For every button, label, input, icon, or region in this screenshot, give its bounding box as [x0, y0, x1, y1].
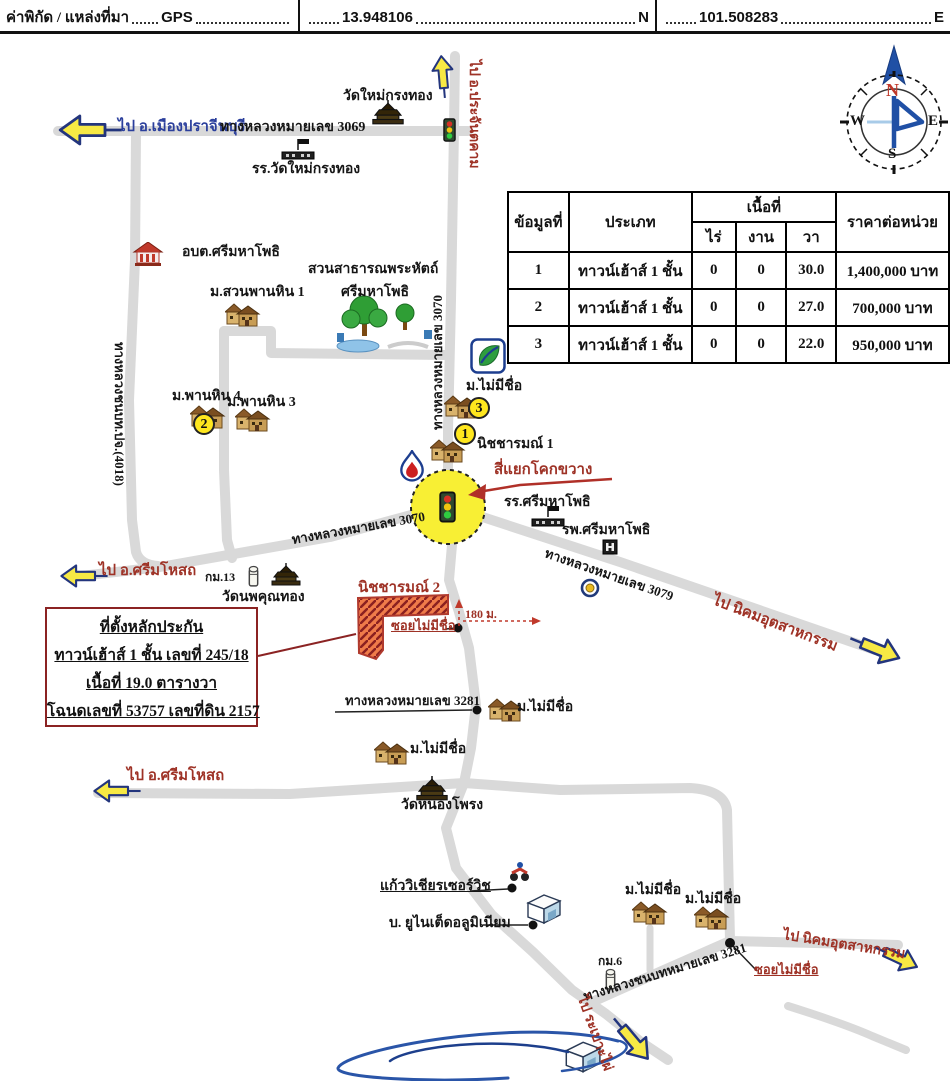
label-road-3069: ทางหลวงหมายเลข 3069: [220, 120, 365, 136]
collateral-info-box: ที่ตั้งหลักประกัน ทาวน์เฮ้าส์ 1 ชั้น เลข…: [45, 607, 258, 727]
label-rural-road-4018: ทางหลวงชนบท.ปจ.(4018): [111, 342, 126, 486]
latitude-cell: 13.948106 N: [300, 0, 657, 31]
warehouse-icon: [528, 895, 560, 923]
label-hospital-srimahaphot: รพ.ศรีมหาโพธิ: [562, 523, 650, 539]
label-road-3281: ทางหลวงหมายเลข 3281: [345, 694, 480, 709]
table-row: 2 ทาวน์เฮ้าส์ 1 ชั้น 0 0 27.0 700,000 บา…: [508, 289, 949, 326]
col-ngan: งาน: [736, 222, 787, 252]
cell-type: ทาวน์เฮ้าส์ 1 ชั้น: [569, 326, 692, 363]
traffic-light-icon: [440, 492, 455, 521]
label-m-no-name-ptt: ม.ไม่มีชื่อ: [466, 379, 522, 395]
subject-badge-3: 3: [468, 397, 490, 419]
village-icon: [374, 742, 408, 764]
cell-type: ทาวน์เฮ้าส์ 1 ชั้น: [569, 252, 692, 289]
label-to-srimahosot-1: ไป อ.ศรีมโหสถ: [99, 563, 196, 580]
village-icon: [694, 907, 728, 929]
coordinate-source: GPS: [161, 9, 193, 26]
cell-rai: 0: [692, 252, 736, 289]
cell-rai: 0: [692, 289, 736, 326]
info-line4: โฉนดเลขที่ 53757 เลขที่ดิน 2157: [47, 698, 256, 726]
col-wa: วา: [786, 222, 835, 252]
cell-no: 3: [508, 326, 569, 363]
ptt-station-icon: [472, 340, 505, 373]
col-type: ประเภท: [569, 192, 692, 252]
ptt-flame-icon: [401, 451, 422, 480]
label-kok-khwang-intersection: สี่แยกโคกขวาง: [494, 462, 592, 479]
latitude-suffix: N: [638, 9, 649, 26]
label-park-line2: ศรีมหาโพธิ: [341, 285, 409, 301]
longitude-suffix: E: [934, 9, 944, 26]
arrow-left-prachinburi-icon: [60, 116, 122, 144]
compass-north-arrow-icon: [883, 46, 905, 84]
label-wat-nopphakhun-thong: วัดนพคุณทอง: [222, 590, 305, 606]
info-title: ที่ตั้งหลักประกัน: [47, 614, 256, 642]
label-m-no-name-b2: ม.ไม่มีชื่อ: [685, 892, 741, 908]
info-line3: เนื้อที่ 19.0 ตารางวา: [47, 670, 256, 698]
dot-leader: [309, 21, 339, 24]
label-obt-srimahaphot: อบต.ศรีมหาโพธิ: [182, 245, 280, 261]
cell-price: 1,400,000 บาท: [836, 252, 949, 289]
label-km-6: กม.6: [598, 955, 622, 969]
cell-rai: 0: [692, 326, 736, 363]
label-nitcharom-1: นิชชารมณ์ 1: [477, 437, 554, 453]
coordinate-header: ค่าพิกัด / แหล่งที่มา GPS 13.948106 N 10…: [0, 0, 950, 34]
table-row: 3 ทาวน์เฮ้าส์ 1 ชั้น 0 0 22.0 950,000 บา…: [508, 326, 949, 363]
label-m-no-name-b1: ม.ไม่มีชื่อ: [625, 883, 681, 899]
dot-leader: [666, 21, 696, 24]
cell-ngan: 0: [736, 252, 787, 289]
label-school-srimahaphot: รร.ศรีมหาโพธิ: [504, 495, 591, 511]
compass-e-label: E: [928, 113, 938, 130]
village-icon: [632, 902, 666, 924]
label-road-3070-vertical: ทางหลวงหมายเลข 3070: [431, 295, 446, 430]
road-bottom-right: [788, 1006, 906, 1050]
label-school-wat-mai: รร.วัดใหม่กรงทอง: [252, 162, 360, 178]
cell-ngan: 0: [736, 326, 787, 363]
cell-wa: 22.0: [786, 326, 835, 363]
dot-leader: [196, 21, 289, 24]
cell-no: 1: [508, 252, 569, 289]
road-rural-4018: [129, 131, 158, 566]
road-internal-vertical: [224, 331, 232, 558]
col-no: ข้อมูลที่: [508, 192, 569, 252]
subject-badge-1: 1: [454, 423, 476, 445]
cell-wa: 27.0: [786, 289, 835, 326]
longitude-value: 101.508283: [699, 9, 778, 26]
label-united-aluminium: บ. ยูไนเต็ดอลูมิเนียม: [389, 916, 511, 932]
valuation-table: ข้อมูลที่ ประเภท เนื้อที่ ราคาต่อหน่วย ไ…: [507, 191, 950, 364]
label-wat-mai-krongthong: วัดใหม่กรงทอง: [343, 89, 433, 105]
school-icon: [282, 139, 314, 159]
label-km-13: กม.13: [205, 571, 235, 585]
label-wat-nong-phrong: วัดหนองโพรง: [401, 798, 483, 814]
station-badge-icon: [582, 580, 598, 596]
table-header-row: ข้อมูลที่ ประเภท เนื้อที่ ราคาต่อหน่วย: [508, 192, 949, 222]
compass-w-label: W: [850, 113, 865, 130]
temple-icon: [272, 563, 300, 585]
label-to-srimahosot-2: ไป อ.ศรีมโหสถ: [127, 768, 224, 785]
col-rai: ไร่: [692, 222, 736, 252]
label-m-suan-phan-hin-1: ม.สวนพานหิน 1: [210, 285, 305, 301]
km-post-icon: [249, 566, 257, 585]
label-distance-180m: 180 ม.: [465, 608, 497, 622]
label-m-no-name-mid: ม.ไม่มีชื่อ: [410, 742, 466, 758]
cell-ngan: 0: [736, 289, 787, 326]
label-to-prachantakham: ไป อ.ประจันตคาม: [465, 60, 481, 169]
label-kaew-wichian-service: แก้ววิเชียรเซอร์วิช: [380, 879, 491, 895]
label-park-line1: สวนสาธารณพระหัตถ์: [308, 262, 438, 278]
traffic-light-icon: [444, 119, 455, 141]
dot-leader: [132, 21, 158, 24]
label-nitcharom-2: นิชชารมณ์ 2: [358, 580, 440, 597]
village-icon: [235, 409, 269, 431]
cell-type: ทาวน์เฮ้าส์ 1 ชั้น: [569, 289, 692, 326]
compass-rose: N W E S: [838, 44, 950, 176]
cell-price: 950,000 บาท: [836, 326, 949, 363]
label-m-phan-hin-3: ม.พานหิน 3: [227, 395, 296, 411]
cell-no: 2: [508, 289, 569, 326]
longitude-cell: 101.508283 E: [657, 0, 950, 31]
dot-leader: [781, 21, 931, 24]
village-icon: [225, 304, 259, 326]
scanned-map-page: { "header": { "label": "ค่าพิกัด / แหล่ง…: [0, 0, 950, 1081]
coordinate-label-cell: ค่าพิกัด / แหล่งที่มา GPS: [0, 0, 300, 31]
label-m-no-name-3281: ม.ไม่มีชื่อ: [517, 700, 573, 716]
label-soi-no-name-2: ซอยไม่มีชื่อ: [754, 963, 819, 978]
hospital-icon: [603, 540, 617, 554]
motorcycle-icon: [510, 862, 529, 881]
table-row: 1 ทาวน์เฮ้าส์ 1 ชั้น 0 0 30.0 1,400,000 …: [508, 252, 949, 289]
latitude-value: 13.948106: [342, 9, 413, 26]
col-area-group: เนื้อที่: [692, 192, 836, 222]
cell-wa: 30.0: [786, 252, 835, 289]
label-soi-no-name-1: ซอยไม่มีชื่อ: [391, 619, 456, 634]
info-line2: ทาวน์เฮ้าส์ 1 ชั้น เลขที่ 245/18: [47, 642, 256, 670]
col-unit-price: ราคาต่อหน่วย: [836, 192, 949, 252]
park-trees-icon: [337, 296, 432, 352]
cell-price: 700,000 บาท: [836, 289, 949, 326]
dot-leader: [416, 21, 635, 24]
subject-badge-2: 2: [193, 413, 215, 435]
compass-n-label: N: [886, 80, 899, 101]
coordinate-label: ค่าพิกัด / แหล่งที่มา: [6, 5, 129, 29]
compass-s-label: S: [888, 146, 896, 163]
